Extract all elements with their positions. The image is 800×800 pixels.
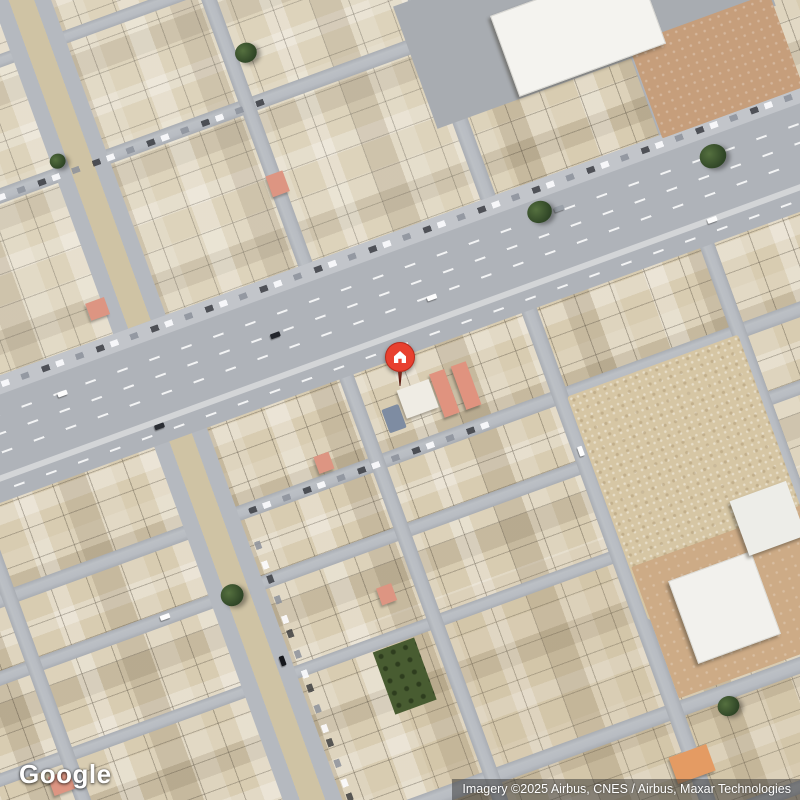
red-roof-buildings (429, 361, 482, 418)
red-roof-building (376, 583, 397, 605)
home-icon (392, 349, 408, 365)
green-field (373, 638, 437, 715)
attribution-text: Imagery ©2025 Airbus, CNES / Airbus, Max… (462, 782, 791, 796)
google-logo[interactable]: Google (19, 759, 112, 790)
map-viewport[interactable]: Google Imagery ©2025 Airbus, CNES / Airb… (0, 0, 800, 800)
satellite-imagery-layer (0, 0, 800, 800)
home-marker-icon[interactable] (385, 342, 415, 372)
attribution-bar: Imagery ©2025 Airbus, CNES / Airbus, Max… (452, 779, 800, 800)
